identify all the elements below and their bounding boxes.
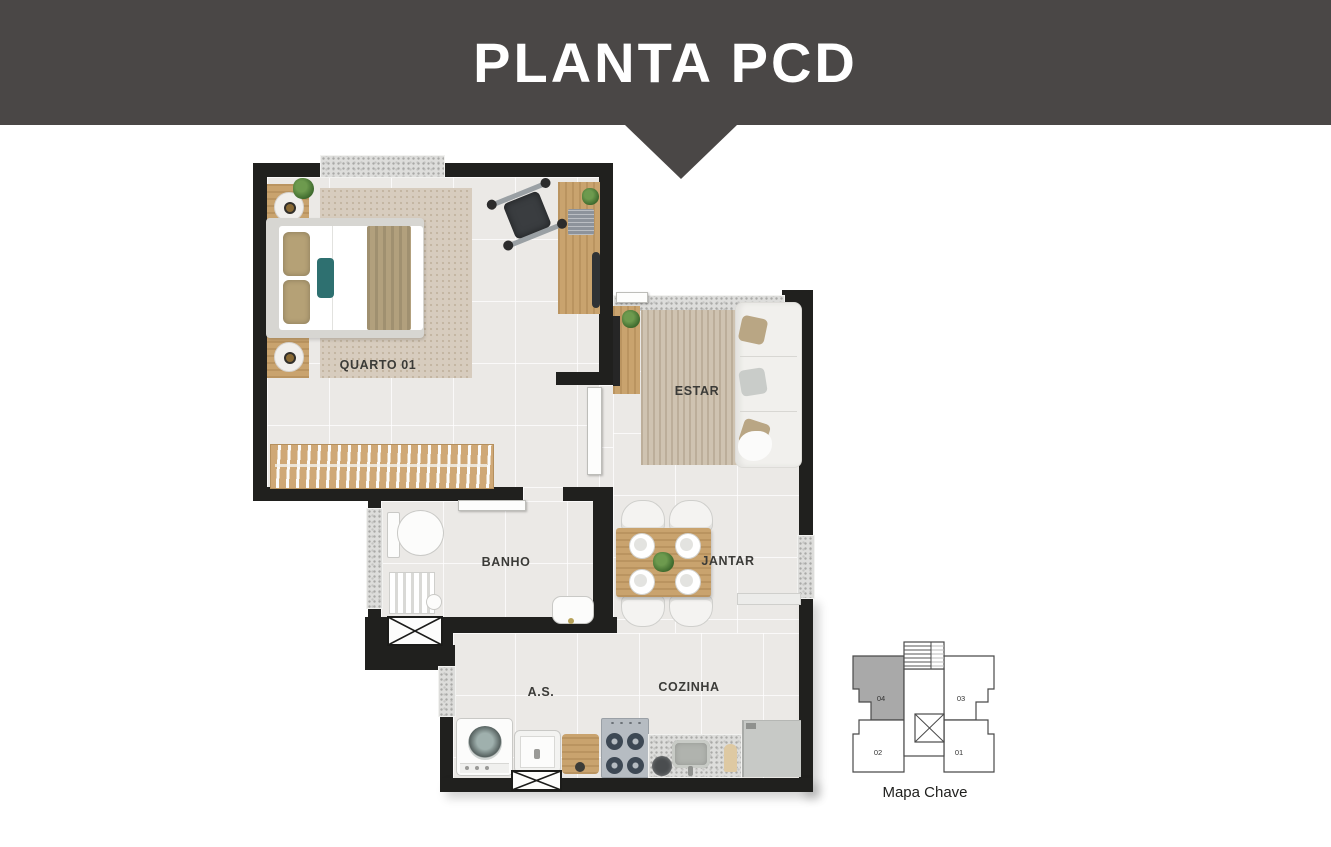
door-quarto <box>587 387 602 475</box>
laptop-icon <box>568 209 594 235</box>
page-title: PLANTA PCD <box>473 30 858 95</box>
plate-icon <box>675 533 701 559</box>
tv-icon <box>613 316 620 386</box>
cutting-board <box>562 734 599 774</box>
title-banner: PLANTA PCD <box>0 0 1331 125</box>
accent-pillow <box>317 258 334 298</box>
bottle-icon <box>724 744 737 772</box>
key-map: 04 03 02 01 <box>845 640 995 780</box>
floor-banho-doorway <box>523 487 563 501</box>
wall-vestibule-stub <box>556 372 613 385</box>
window-banho <box>366 508 383 609</box>
wall-quarto-bottom-a <box>253 487 523 501</box>
door-entry <box>616 292 648 303</box>
drain-icon <box>426 594 442 610</box>
fridge <box>742 720 801 777</box>
wall-quarto-right <box>599 163 613 385</box>
faucet-icon <box>688 766 693 776</box>
wall-right-lower <box>799 597 813 792</box>
plant-centerpiece-icon <box>653 552 674 572</box>
key-map-label-03: 03 <box>957 694 965 703</box>
key-map-corridor <box>904 669 944 756</box>
faucet-icon <box>568 618 574 624</box>
plate-icon <box>629 569 655 595</box>
pillow <box>738 367 768 397</box>
stove-cooktop <box>601 718 649 778</box>
elevator-icon <box>915 714 944 742</box>
toilet-icon <box>397 510 444 556</box>
room-label-jantar: JANTAR <box>701 554 754 568</box>
pot-icon <box>652 756 672 776</box>
wall-quarto-bottom-b <box>563 487 613 501</box>
key-map-caption: Mapa Chave <box>845 784 1005 801</box>
room-label-estar: ESTAR <box>675 384 719 398</box>
plate-icon <box>629 533 655 559</box>
key-map-unit-01 <box>944 720 994 772</box>
key-map-unit-04 <box>853 656 904 720</box>
wall-bottom <box>440 778 813 792</box>
room-label-banho: BANHO <box>482 555 531 569</box>
key-map-label-02: 02 <box>874 748 882 757</box>
bench <box>737 593 801 605</box>
key-map-unit-03 <box>944 656 994 720</box>
room-label-as: A.S. <box>528 685 555 699</box>
kitchen-sink <box>672 740 710 768</box>
stairs-icon <box>904 642 944 669</box>
wall-quarto-left <box>253 163 267 501</box>
pillow <box>283 232 310 276</box>
tank-stand <box>511 770 562 791</box>
sofa-blanket <box>738 431 772 461</box>
plant-icon <box>582 188 599 205</box>
shaft-box <box>387 616 443 646</box>
window-as <box>438 666 456 717</box>
plant-icon <box>293 178 314 199</box>
closet-rack-hangers <box>270 444 494 489</box>
washing-machine <box>456 718 513 776</box>
desk-chair <box>592 252 600 308</box>
lamp-icon <box>274 342 304 372</box>
banner-pointer-arrow <box>625 125 737 179</box>
room-label-quarto: QUARTO 01 <box>340 358 417 372</box>
key-map-label-04: 04 <box>877 694 885 703</box>
plant-icon <box>622 310 640 328</box>
pillow <box>283 280 310 324</box>
laundry-tank <box>514 730 561 774</box>
sofa <box>735 302 802 468</box>
key-map-unit-02 <box>853 720 904 772</box>
window-quarto <box>320 155 445 178</box>
plate-icon <box>675 569 701 595</box>
window-jantar <box>797 535 815 599</box>
door-banho <box>458 500 526 511</box>
pillow <box>738 315 769 346</box>
floorplan-page: PLANTA PCD <box>0 0 1331 847</box>
room-label-cozinha: COZINHA <box>658 680 719 694</box>
wall-banho-right <box>593 501 613 617</box>
bed-throw <box>367 226 411 330</box>
key-map-label-01: 01 <box>955 748 963 757</box>
